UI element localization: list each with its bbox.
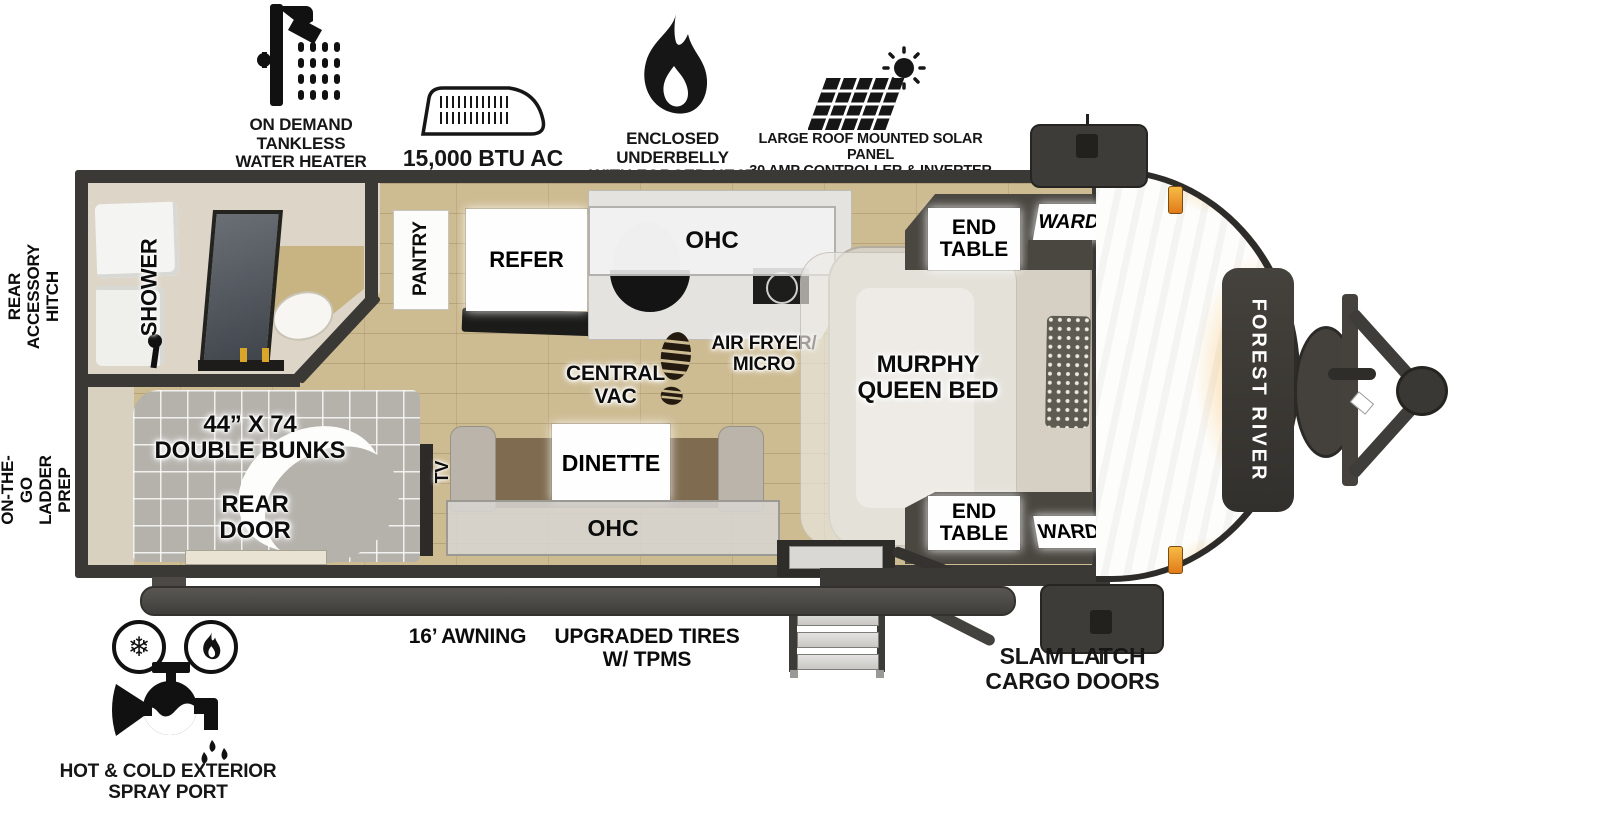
footprint-icon (648, 328, 703, 420)
kitchen-ohc-label: OHC (685, 227, 738, 255)
step-3 (797, 632, 879, 648)
bath-wall-bottom (88, 374, 300, 387)
wardrobe-top: WARD (1033, 204, 1105, 240)
spray-port-icon (100, 660, 246, 764)
awning-length-label: 16’ AWNING (385, 625, 550, 648)
spray-port-label: HOT & COLD EXTERIOR SPRAY PORT (58, 762, 278, 804)
water-heater-label: ON DEMAND TANKLESS WATER HEATER (222, 116, 380, 172)
shower-label: SHOWER (128, 222, 172, 352)
ac-label: 15,000 BTU AC (393, 146, 573, 171)
wardrobe-bottom: WARD (1033, 516, 1105, 548)
brand-badge: FOREST RIVER (1222, 268, 1294, 512)
brand-label: FOREST RIVER (1247, 298, 1270, 482)
refer-base (462, 308, 598, 337)
awning-tube (140, 586, 1016, 616)
end-table-bottom: END TABLE (928, 496, 1020, 550)
step-4 (797, 654, 879, 670)
murphy-bed-label: MURPHY QUEEN BED (833, 352, 1023, 405)
end-table-top: END TABLE (928, 208, 1020, 270)
hitch-coupler (1396, 366, 1448, 416)
sofa-perforated-panel (1045, 316, 1091, 429)
marker-light-top (1168, 186, 1183, 214)
kitchen-overhead-cabinet: OHC (588, 206, 836, 276)
tires-label: UPGRADED TIRES W/ TPMS (552, 625, 742, 671)
floorplan-canvas: ON DEMAND TANKLESS WATER HEATER 15,000 B… (0, 0, 1600, 833)
dinette-label-box: DINETTE (552, 424, 670, 502)
ac-unit-icon (413, 84, 549, 140)
rear-door-label: REAR DOOR (180, 492, 330, 545)
hitch-jack-handle (1328, 368, 1376, 380)
dinette-ohc-label: OHC (587, 515, 638, 542)
cargo-doors-label: SLAM LATCH CARGO DOORS (955, 644, 1190, 695)
flame-small-icon (200, 632, 222, 662)
shower-stall (199, 210, 283, 370)
step-foot-left (790, 670, 798, 678)
shower-water-heater-icon (252, 2, 352, 108)
candle-2 (262, 348, 269, 362)
snowflake-icon: ❄ (128, 634, 151, 661)
refrigerator: REFER (466, 209, 587, 311)
cargo-door-top-stem (1086, 114, 1089, 126)
cooktop-burner (766, 272, 798, 304)
entry-door-tread (789, 546, 883, 569)
rear-accessory-hitch-label: REAR ACCESSORY HITCH (0, 232, 68, 362)
wardrobe-top-body (1028, 240, 1092, 270)
step-foot-right (876, 670, 884, 678)
flame-icon (636, 14, 710, 124)
candle-1 (240, 348, 247, 362)
solar-panel-icon (808, 46, 926, 132)
ladder-prep-label: ON-THE-GO LADDER PREP (4, 420, 68, 560)
cargo-door-bottom-latch (1090, 610, 1112, 634)
dinette-overhead-cabinet: OHC (446, 500, 780, 556)
bath-wall-right (365, 183, 378, 301)
bunks-label: 44” X 74 DOUBLE BUNKS (125, 412, 375, 465)
pantry-label: PANTRY (393, 210, 447, 308)
marker-light-bottom (1168, 546, 1183, 574)
cargo-door-top-latch (1076, 134, 1098, 158)
rear-door-sill (185, 550, 327, 565)
